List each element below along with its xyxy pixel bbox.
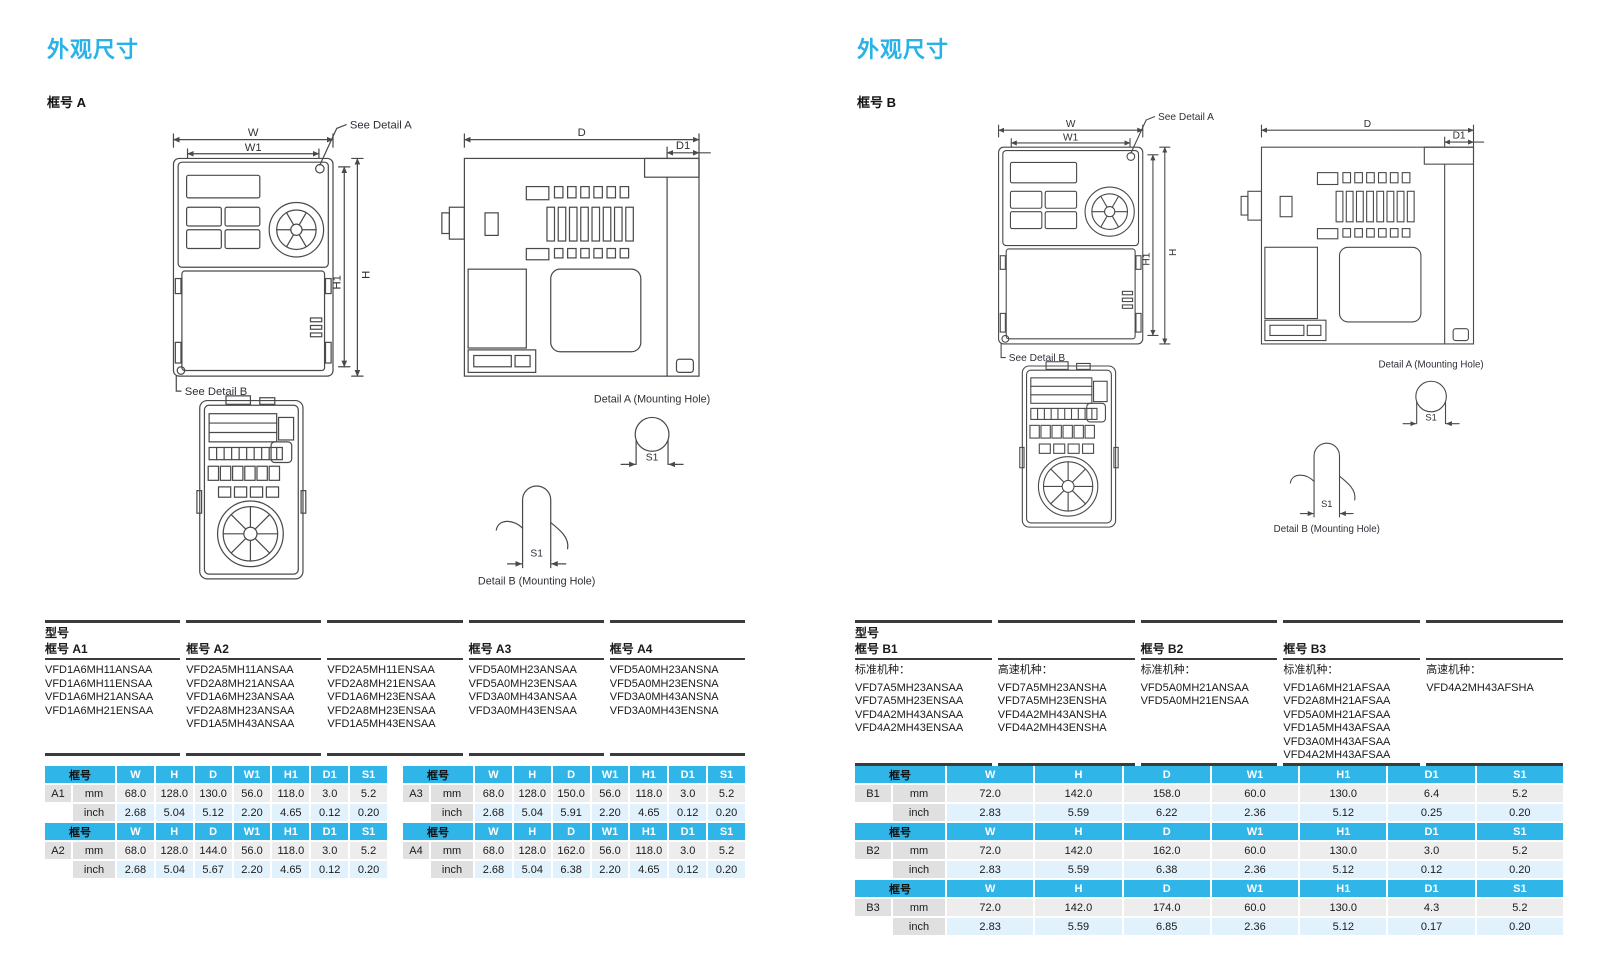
- model-list: VFD4A2MH43AFSHA: [1426, 678, 1563, 696]
- dim-value-cell: 2.68: [117, 861, 154, 878]
- dim-value-cell: 5.2: [1477, 899, 1563, 916]
- dim-value-cell: 4.65: [630, 804, 667, 821]
- dim-header-cell: 框号: [45, 823, 115, 840]
- dim-value-cell: 2.20: [592, 861, 629, 878]
- dim-value-cell: 130.0: [1300, 785, 1386, 802]
- dim-header-cell: D1: [1388, 880, 1474, 897]
- model-column: 框号 B3 标准机种： VFD1A6MH21AFSAA VFD2A8MH21AF…: [1283, 620, 1420, 766]
- model-list: VFD7A5MH23ANSAA VFD7A5MH23ENSAA VFD4A2MH…: [855, 678, 992, 736]
- dim-header-cell: W1: [234, 823, 271, 840]
- dim-value-cell: 2.36: [1212, 918, 1298, 935]
- frame-group-label: 框号 A3: [469, 641, 604, 657]
- frame-group-label: 框号 A4: [610, 641, 745, 657]
- dim-value-cell: 0.25: [1388, 804, 1474, 821]
- dim-header-cell: H1: [1300, 880, 1386, 897]
- dim-header-cell: W1: [1212, 880, 1298, 897]
- dim-value-cell: 118.0: [630, 785, 667, 802]
- frame-label: 框号 A: [47, 92, 86, 111]
- frame-group-label: 框号 B3: [1283, 641, 1420, 657]
- dim-value-cell: 6.85: [1124, 918, 1210, 935]
- dim-value-cell: 0.20: [1477, 861, 1563, 878]
- frame-b-model-table: 型号 框号 B1 标准机种： VFD7A5MH23ANSAA VFD7A5MH2…: [855, 620, 1563, 756]
- model-list: VFD5A0MH21ANSAA VFD5A0MH21ENSAA: [1141, 678, 1278, 709]
- unit-cell: inch: [893, 804, 945, 821]
- dim-header-cell: D: [553, 766, 590, 783]
- dim-header-cell: 框号: [45, 766, 115, 783]
- dim-header-cell: S1: [350, 766, 387, 783]
- dim-value-cell: 68.0: [475, 842, 512, 859]
- dim-value-cell: 60.0: [1212, 785, 1298, 802]
- dim-value-cell: 0.12: [1388, 861, 1474, 878]
- dim-value-cell: 5.04: [514, 804, 551, 821]
- dim-value-cell: 4.3: [1388, 899, 1474, 916]
- model-column-header: [327, 623, 462, 660]
- model-column: VFD2A5MH11ENSAA VFD2A8MH21ENSAA VFD1A6MH…: [327, 620, 462, 756]
- unit-cell: inch: [73, 804, 115, 821]
- dim-value-cell: 128.0: [156, 842, 193, 859]
- dim-value-cell: 2.68: [475, 804, 512, 821]
- model-table-title: 型号: [855, 626, 992, 641]
- dim-header-cell: H: [1035, 880, 1121, 897]
- dim-value-cell: 5.91: [553, 804, 590, 821]
- frame-group-label: 框号 A1: [45, 641, 180, 657]
- frame-a-dimension-tables: 框号 W H D W1 H1 D1 S1 A1 mm 68.0 128.0 13…: [45, 766, 745, 880]
- model-table-title: [327, 626, 462, 641]
- dim-value-cell: 2.36: [1212, 861, 1298, 878]
- frame-group-label: 框号 A2: [186, 641, 321, 657]
- dim-header-cell: W: [117, 823, 154, 840]
- model-table-title: [1426, 626, 1563, 641]
- model-column: 型号 框号 B1 标准机种： VFD7A5MH23ANSAA VFD7A5MH2…: [855, 620, 992, 766]
- model-type-label: 高速机种：: [1426, 660, 1563, 678]
- dim-header-cell: 框号: [855, 766, 945, 783]
- frame-group-label: [327, 641, 462, 657]
- dim-header-cell: H1: [272, 823, 309, 840]
- dim-header-cell: S1: [708, 766, 745, 783]
- dim-table-a3: 框号 W H D W1 H1 D1 S1 A3 mm 68.0 128.0 15…: [403, 766, 745, 821]
- dim-value-cell: 5.2: [1477, 785, 1563, 802]
- dim-value-cell: 3.0: [669, 785, 706, 802]
- dim-value-cell: 130.0: [1300, 899, 1386, 916]
- model-column: 高速机种： VFD4A2MH43AFSHA: [1426, 620, 1563, 766]
- dim-value-cell: 2.20: [234, 804, 271, 821]
- dim-header-cell: H: [514, 766, 551, 783]
- dim-header-cell: 框号: [403, 766, 473, 783]
- dim-header-cell: D1: [669, 766, 706, 783]
- dim-value-cell: 2.83: [947, 804, 1033, 821]
- dim-table-a1: 框号 W H D W1 H1 D1 S1 A1 mm 68.0 128.0 13…: [45, 766, 387, 821]
- dim-value-cell: 0.12: [669, 804, 706, 821]
- dim-table-group: 框号 W H D W1 H1 D1 S1 A1 mm 68.0 128.0 13…: [45, 766, 387, 880]
- unit-cell: inch: [73, 861, 115, 878]
- dim-value-cell: 5.2: [708, 785, 745, 802]
- model-list: VFD2A5MH11ANSAA VFD2A8MH21ANSAA VFD1A6MH…: [186, 660, 321, 732]
- model-column-header: 框号 A3: [469, 623, 604, 660]
- model-type-label: 高速机种：: [998, 660, 1135, 678]
- model-table-title: [186, 626, 321, 641]
- dim-value-cell: 60.0: [1212, 842, 1298, 859]
- model-column-header: [998, 623, 1135, 660]
- unit-cell: inch: [893, 918, 945, 935]
- dim-value-cell: 150.0: [553, 785, 590, 802]
- dim-value-cell: 3.0: [311, 842, 348, 859]
- model-list: VFD1A6MH11ANSAA VFD1A6MH11ENSAA VFD1A6MH…: [45, 660, 180, 718]
- frame-id-cell: B2: [855, 842, 891, 859]
- dim-value-cell: 3.0: [1388, 842, 1474, 859]
- dim-value-cell: 0.12: [311, 804, 348, 821]
- dim-value-cell: 68.0: [117, 842, 154, 859]
- dim-header-cell: W1: [234, 766, 271, 783]
- dim-value-cell: 2.36: [1212, 804, 1298, 821]
- dim-header-cell: W1: [592, 823, 629, 840]
- model-list: VFD1A6MH21AFSAA VFD2A8MH21AFSAA VFD5A0MH…: [1283, 678, 1420, 763]
- frame-b-dimension-drawings: [973, 98, 1533, 539]
- dim-value-cell: 6.38: [1124, 861, 1210, 878]
- dim-value-cell: 5.04: [156, 804, 193, 821]
- dim-header-cell: W: [947, 880, 1033, 897]
- dim-header-cell: D: [1124, 880, 1210, 897]
- dim-table-b2: 框号 W H D W1 H1 D1 S1 B2 mm 72.0 142.0 16…: [855, 823, 1563, 878]
- dim-header-cell: W1: [592, 766, 629, 783]
- unit-cell: mm: [893, 785, 945, 802]
- dim-value-cell: 60.0: [1212, 899, 1298, 916]
- dim-value-cell: 142.0: [1035, 842, 1121, 859]
- dim-header-cell: W: [947, 766, 1033, 783]
- model-column: 框号 A2 VFD2A5MH11ANSAA VFD2A8MH21ANSAA VF…: [186, 620, 321, 756]
- dim-table-b1: 框号 W H D W1 H1 D1 S1 B1 mm 72.0 142.0 15…: [855, 766, 1563, 821]
- model-type-label: 标准机种：: [855, 660, 992, 678]
- dim-value-cell: 56.0: [592, 842, 629, 859]
- dim-value-cell: 4.65: [630, 861, 667, 878]
- model-type-label: 标准机种：: [1283, 660, 1420, 678]
- dim-value-cell: 0.20: [708, 861, 745, 878]
- dim-value-cell: 0.20: [350, 804, 387, 821]
- model-table-title: [998, 626, 1135, 641]
- model-column-header: 框号 A2: [186, 623, 321, 660]
- model-column-header: [1426, 623, 1563, 660]
- dim-value-cell: 3.0: [669, 842, 706, 859]
- dim-value-cell: 5.59: [1035, 861, 1121, 878]
- dim-value-cell: 128.0: [514, 842, 551, 859]
- model-table-title: [610, 626, 745, 641]
- dim-header-cell: H1: [272, 766, 309, 783]
- frame-id-cell: A4: [403, 842, 429, 859]
- model-type-label: 标准机种：: [1141, 660, 1278, 678]
- unit-cell: inch: [431, 804, 473, 821]
- dim-value-cell: 158.0: [1124, 785, 1210, 802]
- dim-value-cell: 5.12: [195, 804, 232, 821]
- dim-value-cell: 5.2: [350, 842, 387, 859]
- model-column: 框号 A4 VFD5A0MH23ANSNA VFD5A0MH23ENSNA VF…: [610, 620, 745, 756]
- model-list: VFD5A0MH23ANSNA VFD5A0MH23ENSNA VFD3A0MH…: [610, 660, 745, 718]
- dim-value-cell: 128.0: [156, 785, 193, 802]
- dim-header-cell: D: [1124, 823, 1210, 840]
- model-column: 型号 框号 A1 VFD1A6MH11ANSAA VFD1A6MH11ENSAA…: [45, 620, 180, 756]
- dim-header-cell: D: [1124, 766, 1210, 783]
- dim-header-cell: 框号: [855, 823, 945, 840]
- frame-id-cell: B3: [855, 899, 891, 916]
- dim-value-cell: 0.12: [669, 861, 706, 878]
- frame-b-dimension-tables: 框号 W H D W1 H1 D1 S1 B1 mm 72.0 142.0 15…: [855, 766, 1563, 937]
- dim-header-cell: D: [553, 823, 590, 840]
- dim-header-cell: D: [195, 823, 232, 840]
- dim-header-cell: W: [475, 766, 512, 783]
- model-column: 框号 A3 VFD5A0MH23ANSAA VFD5A0MH23ENSAA VF…: [469, 620, 604, 756]
- dim-header-cell: H: [156, 823, 193, 840]
- dim-value-cell: 128.0: [514, 785, 551, 802]
- dim-header-cell: S1: [1477, 823, 1563, 840]
- dim-value-cell: 4.65: [272, 804, 309, 821]
- dim-header-cell: D1: [311, 766, 348, 783]
- dim-header-cell: H: [156, 766, 193, 783]
- dim-header-cell: D: [195, 766, 232, 783]
- dim-value-cell: 144.0: [195, 842, 232, 859]
- dim-header-cell: S1: [1477, 880, 1563, 897]
- unit-cell: mm: [893, 899, 945, 916]
- dim-value-cell: 118.0: [630, 842, 667, 859]
- dim-value-cell: 6.22: [1124, 804, 1210, 821]
- dim-value-cell: 56.0: [234, 785, 271, 802]
- frame-group-label: 框号 B1: [855, 641, 992, 657]
- dim-value-cell: 4.65: [272, 861, 309, 878]
- dim-value-cell: 68.0: [117, 785, 154, 802]
- dim-value-cell: 2.68: [475, 861, 512, 878]
- dim-header-cell: H1: [1300, 766, 1386, 783]
- dim-value-cell: 130.0: [1300, 842, 1386, 859]
- dim-value-cell: 5.12: [1300, 861, 1386, 878]
- dim-value-cell: 2.68: [117, 804, 154, 821]
- dim-value-cell: 2.83: [947, 918, 1033, 935]
- dim-value-cell: 68.0: [475, 785, 512, 802]
- dim-header-cell: 框号: [403, 823, 473, 840]
- dim-value-cell: 118.0: [272, 842, 309, 859]
- dim-value-cell: 5.59: [1035, 918, 1121, 935]
- dim-header-cell: H1: [1300, 823, 1386, 840]
- unit-cell: mm: [431, 785, 473, 802]
- frame-a-model-table: 型号 框号 A1 VFD1A6MH11ANSAA VFD1A6MH11ENSAA…: [45, 620, 745, 756]
- dim-table-b3: 框号 W H D W1 H1 D1 S1 B3 mm 72.0 142.0 17…: [855, 880, 1563, 935]
- dim-header-cell: H1: [630, 766, 667, 783]
- dim-value-cell: 5.2: [708, 842, 745, 859]
- dim-header-cell: S1: [1477, 766, 1563, 783]
- dim-value-cell: 118.0: [272, 785, 309, 802]
- model-table-title: 型号: [45, 626, 180, 641]
- page-title: 外观尺寸: [857, 32, 949, 64]
- dim-value-cell: 162.0: [553, 842, 590, 859]
- dim-header-cell: D1: [1388, 766, 1474, 783]
- dim-header-cell: S1: [708, 823, 745, 840]
- dim-table-group: 框号 W H D W1 H1 D1 S1 A3 mm 68.0 128.0 15…: [403, 766, 745, 880]
- dim-header-cell: D1: [311, 823, 348, 840]
- frame-id-cell: A1: [45, 785, 71, 802]
- dim-header-cell: H: [1035, 823, 1121, 840]
- frame-id-cell: A3: [403, 785, 429, 802]
- dim-value-cell: 142.0: [1035, 785, 1121, 802]
- dim-table-a4: 框号 W H D W1 H1 D1 S1 A4 mm 68.0 128.0 16…: [403, 823, 745, 878]
- frame-id-cell: A2: [45, 842, 71, 859]
- dim-table-a2: 框号 W H D W1 H1 D1 S1 A2 mm 68.0 128.0 14…: [45, 823, 387, 878]
- dim-value-cell: 2.20: [234, 861, 271, 878]
- dim-value-cell: 5.12: [1300, 804, 1386, 821]
- dim-value-cell: 5.04: [514, 861, 551, 878]
- dim-value-cell: 0.17: [1388, 918, 1474, 935]
- unit-cell: inch: [431, 861, 473, 878]
- dim-header-cell: W: [947, 823, 1033, 840]
- dim-value-cell: 72.0: [947, 842, 1033, 859]
- model-column-header: 框号 B2: [1141, 623, 1278, 660]
- dim-value-cell: 162.0: [1124, 842, 1210, 859]
- dim-value-cell: 5.04: [156, 861, 193, 878]
- dim-header-cell: D1: [1388, 823, 1474, 840]
- dim-header-cell: H1: [630, 823, 667, 840]
- page-title: 外观尺寸: [47, 32, 139, 64]
- dim-value-cell: 5.67: [195, 861, 232, 878]
- dim-value-cell: 142.0: [1035, 899, 1121, 916]
- unit-cell: mm: [893, 842, 945, 859]
- model-column: 高速机种： VFD7A5MH23ANSHA VFD7A5MH23ENSHA VF…: [998, 620, 1135, 766]
- unit-cell: inch: [893, 861, 945, 878]
- model-column-header: 型号 框号 B1: [855, 623, 992, 660]
- dim-header-cell: W: [475, 823, 512, 840]
- dim-value-cell: 3.0: [311, 785, 348, 802]
- dim-value-cell: 2.20: [592, 804, 629, 821]
- dim-value-cell: 5.59: [1035, 804, 1121, 821]
- dim-value-cell: 5.2: [350, 785, 387, 802]
- model-column-header: 框号 A4: [610, 623, 745, 660]
- dim-value-cell: 0.20: [1477, 918, 1563, 935]
- frame-group-label: [1426, 641, 1563, 657]
- model-list: VFD5A0MH23ANSAA VFD5A0MH23ENSAA VFD3A0MH…: [469, 660, 604, 718]
- frame-group-label: [998, 641, 1135, 657]
- dim-header-cell: W: [117, 766, 154, 783]
- dim-header-cell: H: [514, 823, 551, 840]
- model-list: VFD7A5MH23ANSHA VFD7A5MH23ENSHA VFD4A2MH…: [998, 678, 1135, 736]
- dim-header-cell: H: [1035, 766, 1121, 783]
- dim-value-cell: 0.20: [350, 861, 387, 878]
- frame-id-cell: B1: [855, 785, 891, 802]
- dim-value-cell: 6.4: [1388, 785, 1474, 802]
- dim-value-cell: 6.38: [553, 861, 590, 878]
- dim-value-cell: 56.0: [234, 842, 271, 859]
- dim-header-cell: W1: [1212, 766, 1298, 783]
- frame-group-label: 框号 B2: [1141, 641, 1278, 657]
- model-list: VFD2A5MH11ENSAA VFD2A8MH21ENSAA VFD1A6MH…: [327, 660, 462, 732]
- model-table-title: [1283, 626, 1420, 641]
- dim-header-cell: D1: [669, 823, 706, 840]
- dim-value-cell: 5.12: [1300, 918, 1386, 935]
- dim-value-cell: 2.83: [947, 861, 1033, 878]
- dim-value-cell: 0.20: [708, 804, 745, 821]
- model-column: 框号 B2 标准机种： VFD5A0MH21ANSAA VFD5A0MH21EN…: [1141, 620, 1278, 766]
- dim-value-cell: 0.12: [311, 861, 348, 878]
- dim-value-cell: 5.2: [1477, 842, 1563, 859]
- model-table-title: [469, 626, 604, 641]
- model-column-header: 框号 B3: [1283, 623, 1420, 660]
- dim-value-cell: 130.0: [195, 785, 232, 802]
- model-column-header: 型号 框号 A1: [45, 623, 180, 660]
- model-table-title: [1141, 626, 1278, 641]
- dim-header-cell: S1: [350, 823, 387, 840]
- dim-value-cell: 0.20: [1477, 804, 1563, 821]
- unit-cell: mm: [431, 842, 473, 859]
- dim-header-cell: 框号: [855, 880, 945, 897]
- frame-label: 框号 B: [857, 92, 896, 111]
- dim-value-cell: 174.0: [1124, 899, 1210, 916]
- dim-value-cell: 56.0: [592, 785, 629, 802]
- unit-cell: mm: [73, 842, 115, 859]
- dim-value-cell: 72.0: [947, 785, 1033, 802]
- frame-a-dimension-drawings: [145, 104, 765, 592]
- dim-header-cell: W1: [1212, 823, 1298, 840]
- unit-cell: mm: [73, 785, 115, 802]
- dim-value-cell: 72.0: [947, 899, 1033, 916]
